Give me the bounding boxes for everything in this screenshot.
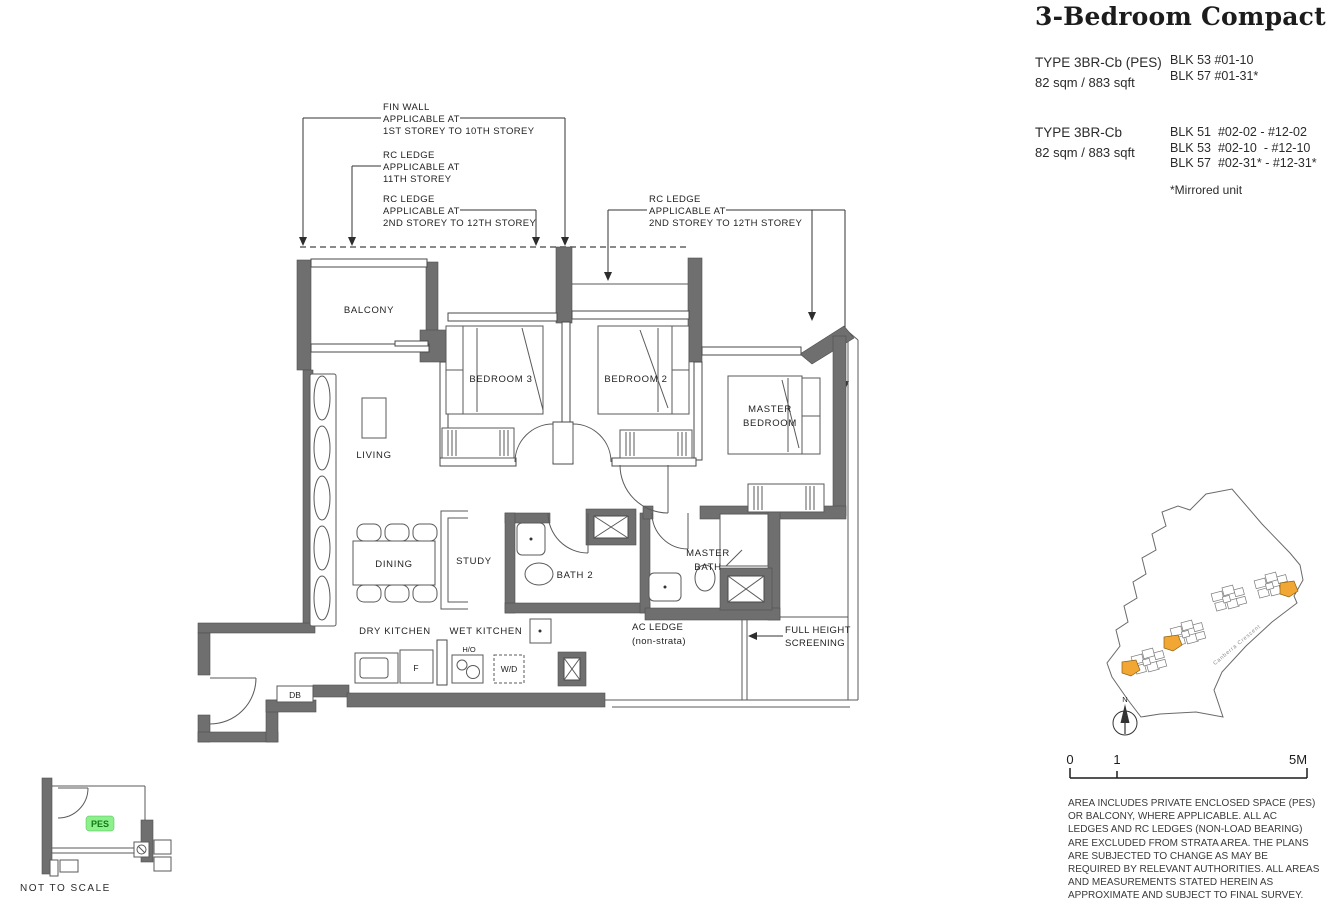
label-master-bath: MASTER [686, 548, 730, 559]
label-db: DB [289, 690, 301, 700]
unit-type-1-area: 82 sqm / 883 sqft [1035, 75, 1165, 90]
label-screening: FULL HEIGHT [785, 625, 851, 636]
compass-n: N [1122, 695, 1127, 704]
svg-text:11TH STOREY: 11TH STOREY [383, 174, 452, 185]
unit-type-2-area: 82 sqm / 883 sqft [1035, 145, 1165, 160]
doors [210, 424, 688, 724]
svg-text:BEDROOM: BEDROOM [743, 418, 797, 429]
label-dining: DINING [375, 559, 412, 570]
label-pes: PES [91, 819, 109, 829]
scale-bar: 0 1 5M [1066, 752, 1307, 778]
block-cluster [1210, 583, 1247, 613]
scale-five-m: 5M [1289, 752, 1307, 767]
page-title: 3-Bedroom Compact [1035, 2, 1326, 31]
label-study: STUDY [456, 556, 492, 567]
label-master-bedroom: MASTER [748, 404, 792, 415]
scale-one: 1 [1113, 752, 1120, 767]
site-map: Canberra Crescent N [1107, 489, 1303, 735]
svg-text:APPLICABLE AT: APPLICABLE AT [383, 206, 460, 217]
svg-text:APPLICABLE AT: APPLICABLE AT [383, 114, 460, 125]
label-living: LIVING [356, 450, 391, 461]
label-wet-kitchen: WET KITCHEN [450, 626, 523, 637]
label-fridge: F [413, 663, 418, 673]
label-washer: W/D [501, 664, 518, 674]
disclaimer-text: AREA INCLUDES PRIVATE ENCLOSED SPACE (PE… [1068, 797, 1320, 903]
rc-ledge-left-note: RC LEDGE [383, 194, 435, 205]
site-boundary [1107, 489, 1303, 717]
svg-text:APPLICABLE AT: APPLICABLE AT [649, 206, 726, 217]
label-balcony: BALCONY [344, 305, 394, 316]
unit-type-2-blocks: BLK 51 #02-02 - #12-02 BLK 53 #02-10 - #… [1170, 125, 1317, 172]
unit-type-1-name: TYPE 3BR-Cb (PES) [1035, 55, 1165, 70]
label-ac-ledge: AC LEDGE [632, 622, 683, 633]
unit-type-2: TYPE 3BR-Cb 82 sqm / 883 sqft [1035, 125, 1165, 160]
label-bedroom2: BEDROOM 2 [604, 374, 667, 385]
svg-text:(non-strata): (non-strata) [632, 636, 686, 647]
pes-inset: PES NOT TO SCALE [20, 778, 171, 894]
north-compass: N [1113, 695, 1137, 735]
svg-text:1ST STOREY TO 10TH STOREY: 1ST STOREY TO 10TH STOREY [383, 126, 535, 137]
svg-text:2ND STOREY TO 12TH STOREY: 2ND STOREY TO 12TH STOREY [383, 218, 537, 229]
highlighted-unit [1164, 635, 1182, 651]
unit-type-1: TYPE 3BR-Cb (PES) 82 sqm / 883 sqft [1035, 55, 1165, 90]
rc-ledge-11-note: RC LEDGE [383, 150, 435, 161]
floorplan-page: FIN WALL APPLICABLE AT 1ST STOREY TO 10T… [0, 0, 1328, 922]
scale-zero: 0 [1066, 752, 1073, 767]
label-hob: H/O [462, 645, 476, 654]
label-dry-kitchen: DRY KITCHEN [359, 626, 431, 637]
road-label: Canberra Crescent [1212, 624, 1262, 667]
svg-text:2ND STOREY TO 12TH STOREY: 2ND STOREY TO 12TH STOREY [649, 218, 803, 229]
mirrored-unit-note: *Mirrored unit [1170, 183, 1242, 197]
fin-wall-note: FIN WALL [383, 102, 430, 113]
rc-ledge-right-note: RC LEDGE [649, 194, 701, 205]
not-to-scale-note: NOT TO SCALE [20, 883, 111, 894]
label-bath2: BATH 2 [557, 570, 594, 581]
unit-type-1-blocks: BLK 53 #01-10 BLK 57 #01-31* [1170, 53, 1258, 84]
svg-text:SCREENING: SCREENING [785, 638, 845, 649]
label-bedroom3: BEDROOM 3 [469, 374, 532, 385]
svg-text:BATH: BATH [694, 562, 721, 573]
unit-type-2-name: TYPE 3BR-Cb [1035, 125, 1165, 140]
svg-text:APPLICABLE AT: APPLICABLE AT [383, 162, 460, 173]
